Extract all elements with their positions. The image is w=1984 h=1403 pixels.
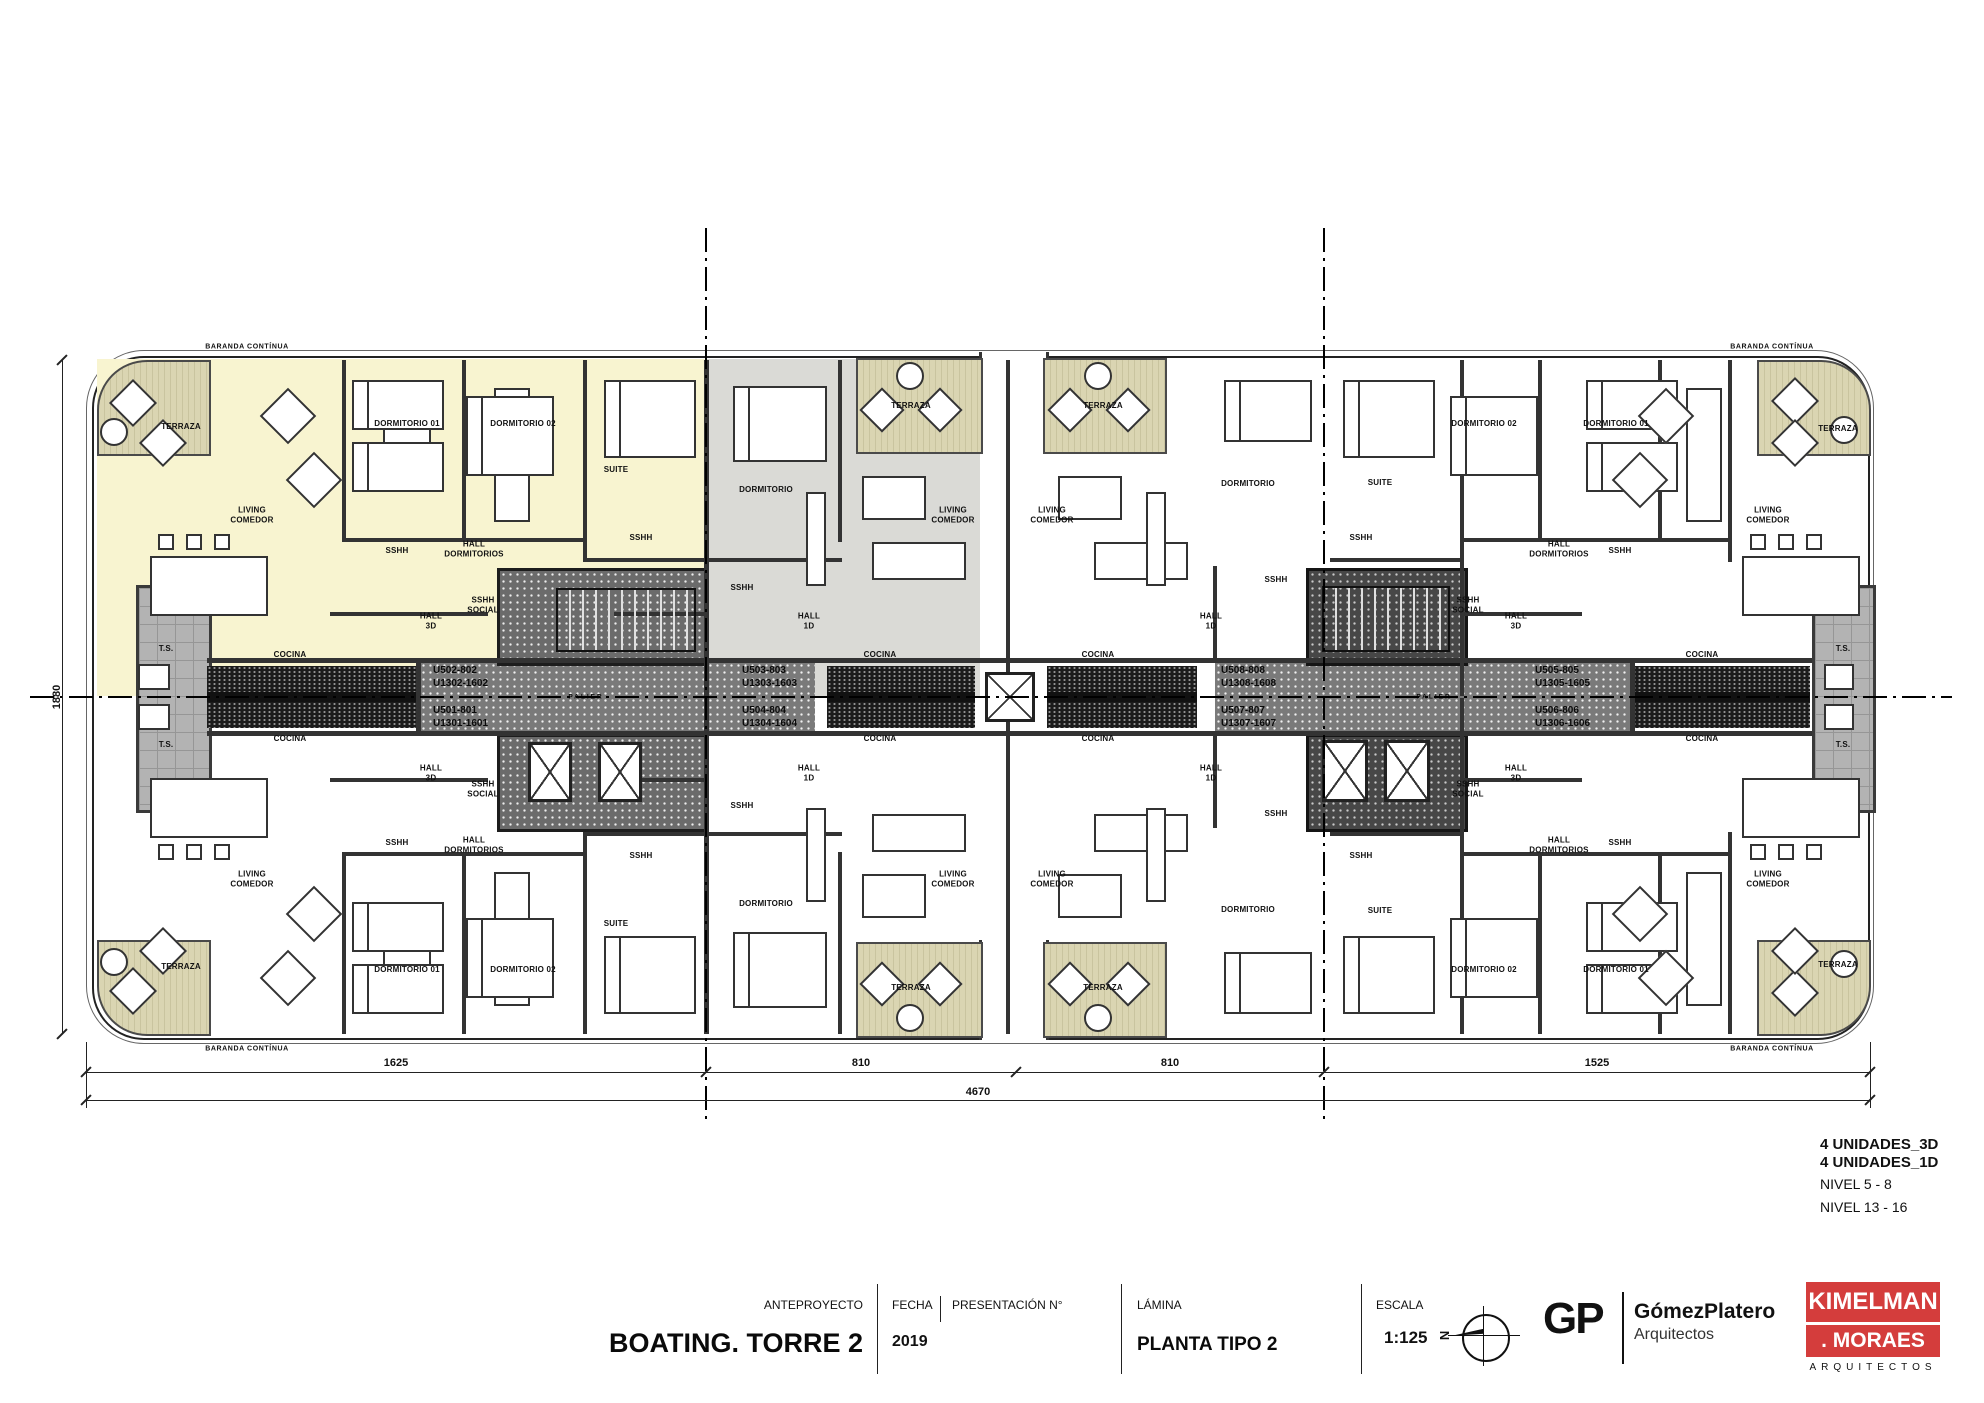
room-label: T.S.: [159, 644, 174, 654]
room-label: SUITE: [604, 919, 629, 929]
room-label: TERRAZA: [1818, 424, 1858, 434]
wall: [1330, 558, 1464, 562]
tv-unit: [806, 492, 826, 586]
room-label: T.S.: [159, 740, 174, 750]
wall: [1006, 360, 1010, 696]
side-table: [1084, 1004, 1112, 1032]
presentacion-label: PRESENTACIÓN N°: [952, 1298, 1063, 1312]
kitchen-counter: [1047, 666, 1197, 692]
chair: [1750, 534, 1766, 550]
elevator: [528, 742, 572, 802]
bed: [1450, 396, 1538, 476]
side-table: [100, 418, 128, 446]
room-label: SSHH SOCIAL: [467, 779, 498, 798]
room-label: HALL 1D: [798, 763, 820, 782]
unit-id-label: U507-807 U1307-1607: [1221, 705, 1276, 730]
room-label: DORMITORIO: [739, 899, 793, 909]
washer: [138, 664, 170, 690]
bed: [466, 918, 554, 998]
room-label: SSHH: [1608, 838, 1631, 848]
wall: [207, 658, 1812, 663]
dim-segment: 1525: [1585, 1057, 1609, 1069]
wall: [1330, 832, 1464, 836]
wall: [1006, 698, 1010, 1034]
bed: [733, 932, 827, 1008]
wall: [342, 852, 346, 1034]
tv-unit: [1146, 492, 1166, 586]
kitchen-counter: [1047, 702, 1197, 728]
titleblock-separator: [877, 1284, 878, 1374]
titleblock-separator: [1361, 1284, 1362, 1374]
room-label: LIVING COMEDOR: [230, 869, 273, 888]
wall: [1538, 360, 1542, 542]
annotation-unidades-3d: 4 UNIDADES_3D: [1820, 1136, 1938, 1153]
unit-id-label: U508-808 U1308-1608: [1221, 665, 1276, 690]
centerline-horizontal: [30, 696, 1952, 698]
sofa: [1686, 388, 1722, 522]
room-label: DORMITORIO: [1221, 479, 1275, 489]
unit-id-label: U503-803 U1303-1603: [742, 665, 797, 690]
room-label: LIVING COMEDOR: [931, 505, 974, 524]
room-label: COCINA: [864, 734, 897, 744]
room-label: SSHH: [629, 533, 652, 543]
room-label: SSHH: [385, 838, 408, 848]
dim-vertical: 1880: [51, 685, 63, 709]
unit-id-label: U506-806 U1306-1606: [1535, 705, 1590, 730]
room-label: TERRAZA: [891, 983, 931, 993]
room-label: COCINA: [274, 650, 307, 660]
wall: [583, 832, 587, 1034]
chair: [214, 534, 230, 550]
side-table: [896, 362, 924, 390]
wall: [207, 731, 1812, 736]
sofa: [872, 542, 966, 580]
room-label: SSHH SOCIAL: [467, 595, 498, 614]
chair: [158, 534, 174, 550]
room-label: DORMITORIO 02: [490, 419, 556, 429]
room-label: SUITE: [1368, 906, 1393, 916]
gp-logo-separator: [1622, 1292, 1624, 1364]
dimension-line-segments: [86, 1072, 1870, 1073]
fecha-label: FECHA: [892, 1298, 933, 1312]
baranda-label: BARANDA CONTÍNUA: [205, 344, 289, 351]
escala-label: ESCALA: [1376, 1298, 1423, 1312]
room-label: DORMITORIO 01: [1583, 965, 1649, 975]
room-label: TERRAZA: [161, 422, 201, 432]
centerline-vertical-right: [1323, 228, 1325, 1120]
dining-table: [150, 556, 268, 616]
room-label: DORMITORIO: [739, 485, 793, 495]
bed: [352, 902, 444, 952]
baranda-label: BARANDA CONTÍNUA: [1730, 1046, 1814, 1053]
room-label: COCINA: [1686, 650, 1719, 660]
room-label: LIVING COMEDOR: [1030, 869, 1073, 888]
room-label: LIVING COMEDOR: [931, 869, 974, 888]
side-table: [1084, 362, 1112, 390]
room-label: COCINA: [1082, 650, 1115, 660]
side-table: [100, 948, 128, 976]
bed: [466, 396, 554, 476]
bed: [1343, 380, 1435, 458]
annotation-nivel-a: NIVEL 5 - 8: [1820, 1176, 1892, 1192]
facade-notch-bottom: [979, 940, 1049, 1040]
wall: [583, 360, 587, 562]
room-label: SSHH: [1349, 533, 1372, 543]
room-label: HALL 1D: [1200, 763, 1222, 782]
kitchen-counter: [827, 666, 975, 692]
table: [862, 476, 926, 520]
room-label: TERRAZA: [1083, 983, 1123, 993]
unit-id-label: U501-801 U1301-1601: [433, 705, 488, 730]
room-label: HALL 1D: [798, 611, 820, 630]
wall: [1728, 360, 1732, 562]
chair: [186, 844, 202, 860]
room-label: SSHH SOCIAL: [1452, 595, 1483, 614]
wall: [342, 360, 346, 542]
side-table: [896, 1004, 924, 1032]
room-label: SSHH: [730, 801, 753, 811]
chair: [1806, 534, 1822, 550]
room-label: DORMITORIO 02: [1451, 419, 1517, 429]
room-label: TERRAZA: [891, 401, 931, 411]
drawing-sheet: TERRAZADORMITORIO 01DORMITORIO 02SUITELI…: [0, 0, 1984, 1403]
dining-table: [150, 778, 268, 838]
unit-id-label: U505-805 U1305-1605: [1535, 665, 1590, 690]
washer: [1824, 704, 1854, 730]
dim-total: 4670: [966, 1086, 990, 1098]
elevator: [598, 742, 642, 802]
bed: [733, 386, 827, 462]
chair: [214, 844, 230, 860]
room-label: TERRAZA: [1083, 401, 1123, 411]
stair-flight: [556, 588, 696, 652]
room-label: SSHH: [629, 851, 652, 861]
wall: [838, 852, 842, 1034]
kitchen-counter: [827, 702, 975, 728]
wall: [330, 612, 488, 616]
lamina-value: PLANTA TIPO 2: [1137, 1334, 1277, 1356]
room-label: HALL DORMITORIOS: [444, 835, 503, 854]
room-label: DORMITORIO 02: [1451, 965, 1517, 975]
dimension-line-total: [86, 1100, 1870, 1101]
room-label: COCINA: [274, 734, 307, 744]
room-label: DORMITORIO 01: [374, 419, 440, 429]
fecha-value: 2019: [892, 1333, 928, 1351]
room-label: HALL DORMITORIOS: [1529, 539, 1588, 558]
washer: [138, 704, 170, 730]
room-label: SSHH: [730, 583, 753, 593]
north-compass-icon: [1462, 1314, 1510, 1362]
wall: [1460, 852, 1732, 856]
kitchen-counter: [1632, 666, 1810, 692]
compass-north-letter: N: [1437, 1331, 1452, 1340]
room-label: COCINA: [1686, 734, 1719, 744]
room-label: SSHH: [385, 546, 408, 556]
room-label: HALL 3D: [420, 763, 442, 782]
room-label: DORMITORIO: [1221, 905, 1275, 915]
lamina-label: LÁMINA: [1137, 1298, 1182, 1312]
room-label: LIVING COMEDOR: [1746, 505, 1789, 524]
wall: [1538, 852, 1542, 1034]
project-title: BOATING. TORRE 2: [563, 1328, 863, 1359]
dim-segment: 810: [1161, 1057, 1179, 1069]
titleblock-separator: [1121, 1284, 1122, 1374]
unit-id-label: U502-802 U1302-1602: [433, 665, 488, 690]
tv-unit: [806, 808, 826, 902]
sofa: [872, 814, 966, 852]
stair-flight: [1322, 586, 1450, 652]
washer: [1824, 664, 1854, 690]
compass-crosshair-v: [1483, 1306, 1484, 1366]
annotation-unidades-1d: 4 UNIDADES_1D: [1820, 1154, 1938, 1171]
wall: [838, 360, 842, 542]
room-label: COCINA: [864, 650, 897, 660]
km-logo-line1: KIMELMAN: [1806, 1282, 1940, 1322]
dining-table: [1742, 778, 1860, 838]
baranda-label: BARANDA CONTÍNUA: [205, 1046, 289, 1053]
bed: [352, 442, 444, 492]
room-label: HALL 3D: [1505, 763, 1527, 782]
dim-segment: 1625: [384, 1057, 408, 1069]
bed: [1224, 952, 1312, 1014]
tv-unit: [1146, 808, 1166, 902]
km-sub: ARQUITECTOS: [1806, 1362, 1940, 1373]
chair: [1778, 844, 1794, 860]
bed: [604, 380, 696, 458]
room-label: LIVING COMEDOR: [1030, 505, 1073, 524]
escala-value: 1:125: [1384, 1328, 1427, 1348]
gp-name: GómezPlatero: [1634, 1300, 1775, 1324]
kitchen-counter: [1632, 702, 1810, 728]
dining-table: [1742, 556, 1860, 616]
kitchen-counter: [207, 702, 420, 728]
room-label: SSHH: [1264, 575, 1287, 585]
bed: [1224, 380, 1312, 442]
room-label: COCINA: [1082, 734, 1115, 744]
gp-sub: Arquitectos: [1634, 1326, 1714, 1344]
dim-segment: 810: [852, 1057, 870, 1069]
sofa: [1686, 872, 1722, 1006]
chair: [1778, 534, 1794, 550]
room-label: TERRAZA: [161, 962, 201, 972]
wall: [330, 778, 488, 782]
room-label: SSHH: [1608, 546, 1631, 556]
titleblock-separator: [940, 1296, 941, 1322]
baranda-label: BARANDA CONTÍNUA: [1730, 344, 1814, 351]
bed: [1450, 918, 1538, 998]
room-label: SSHH: [1264, 809, 1287, 819]
room-label: T.S.: [1836, 740, 1851, 750]
room-label: TERRAZA: [1818, 960, 1858, 970]
chair: [1806, 844, 1822, 860]
bed: [604, 936, 696, 1014]
room-label: LIVING COMEDOR: [1746, 869, 1789, 888]
room-label: HALL DORMITORIOS: [1529, 835, 1588, 854]
sofa: [1094, 814, 1188, 852]
room-label: SUITE: [604, 465, 629, 475]
chair: [186, 534, 202, 550]
room-label: DORMITORIO 01: [1583, 419, 1649, 429]
km-logo-line2: . MORAES: [1806, 1325, 1940, 1357]
annotation-nivel-b: NIVEL 13 - 16: [1820, 1199, 1907, 1215]
room-label: DORMITORIO 02: [490, 965, 556, 975]
room-label: HALL DORMITORIOS: [444, 539, 503, 558]
room-label: HALL 1D: [1200, 611, 1222, 630]
room-label: SSHH SOCIAL: [1452, 779, 1483, 798]
anteproyecto-label: ANTEPROYECTO: [613, 1298, 863, 1312]
room-label: LIVING COMEDOR: [230, 505, 273, 524]
kitchen-counter: [207, 666, 420, 692]
gp-logo: GP: [1543, 1294, 1603, 1344]
room-label: HALL 3D: [1505, 611, 1527, 630]
chair: [1750, 844, 1766, 860]
wall: [583, 832, 708, 836]
wall: [583, 558, 708, 562]
room-label: T.S.: [1836, 644, 1851, 654]
unit-id-label: U504-804 U1304-1604: [742, 705, 797, 730]
sofa: [1094, 542, 1188, 580]
chair: [158, 844, 174, 860]
room-label: HALL 3D: [420, 611, 442, 630]
room-label: SUITE: [1368, 478, 1393, 488]
room-label: DORMITORIO 01: [374, 965, 440, 975]
elevator: [1322, 740, 1368, 802]
elevator: [1384, 740, 1430, 802]
bed: [1343, 936, 1435, 1014]
wall: [1460, 538, 1732, 542]
room-label: SSHH: [1349, 851, 1372, 861]
facade-notch-top: [979, 352, 1049, 452]
table: [862, 874, 926, 918]
wall: [1728, 832, 1732, 1034]
centerline-vertical-left: [705, 228, 707, 1120]
